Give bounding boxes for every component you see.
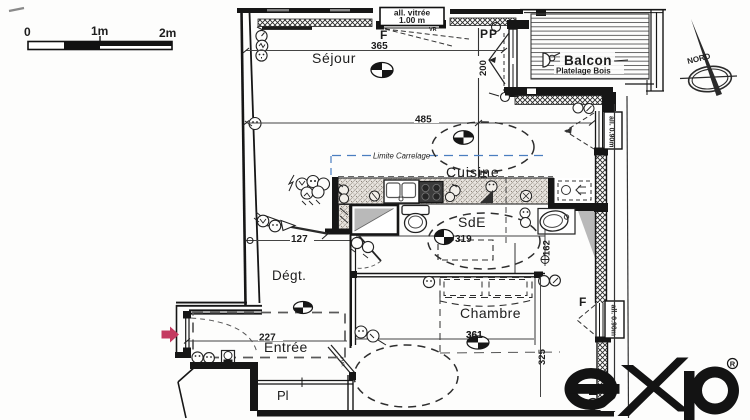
svg-text:2m: 2m xyxy=(159,26,176,40)
svg-text:162: 162 xyxy=(542,240,553,256)
svg-text:1m: 1m xyxy=(91,24,108,38)
svg-text:485: 485 xyxy=(415,115,432,126)
svg-text:Dégt.: Dégt. xyxy=(272,268,306,283)
svg-text:R: R xyxy=(730,360,736,369)
svg-text:200: 200 xyxy=(478,60,489,76)
svg-text:0: 0 xyxy=(24,25,31,39)
svg-text:all. 0.90m: all. 0.90m xyxy=(610,305,617,337)
svg-text:361: 361 xyxy=(466,330,483,341)
svg-text:1.00 m: 1.00 m xyxy=(399,15,425,25)
svg-text:SdE: SdE xyxy=(458,214,486,230)
svg-text:all. 0.90m: all. 0.90m xyxy=(608,116,615,148)
svg-text:Chambre: Chambre xyxy=(460,305,521,321)
svg-text:Entrée: Entrée xyxy=(264,339,308,355)
svg-text:F: F xyxy=(579,295,586,309)
svg-text:Séjour: Séjour xyxy=(312,50,356,66)
svg-text:PP: PP xyxy=(480,27,498,41)
svg-text:Pl: Pl xyxy=(277,388,289,403)
svg-text:VR: VR xyxy=(429,27,437,33)
svg-text:365: 365 xyxy=(371,41,388,52)
svg-text:Limite Carrelage: Limite Carrelage xyxy=(373,152,431,161)
svg-text:127: 127 xyxy=(291,234,308,245)
svg-text:F: F xyxy=(380,28,387,42)
svg-text:319: 319 xyxy=(455,234,472,245)
svg-text:Platelage Bois: Platelage Bois xyxy=(556,67,611,76)
svg-text:325: 325 xyxy=(537,348,548,365)
